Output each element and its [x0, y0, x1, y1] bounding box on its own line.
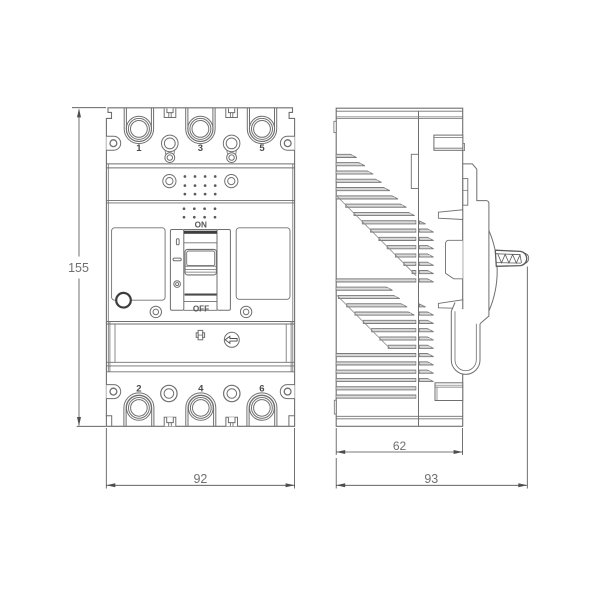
- svg-text:6: 6: [259, 383, 264, 394]
- svg-text:4: 4: [198, 383, 204, 394]
- svg-text:2: 2: [136, 383, 141, 394]
- svg-text:93: 93: [424, 472, 438, 486]
- svg-text:OFF: OFF: [193, 305, 209, 314]
- svg-text:1: 1: [136, 143, 142, 154]
- svg-text:ON: ON: [195, 220, 207, 229]
- svg-text:92: 92: [193, 472, 207, 486]
- svg-text:5: 5: [259, 143, 265, 154]
- svg-text:155: 155: [68, 261, 89, 275]
- svg-text:62: 62: [393, 439, 407, 453]
- svg-text:3: 3: [198, 143, 203, 154]
